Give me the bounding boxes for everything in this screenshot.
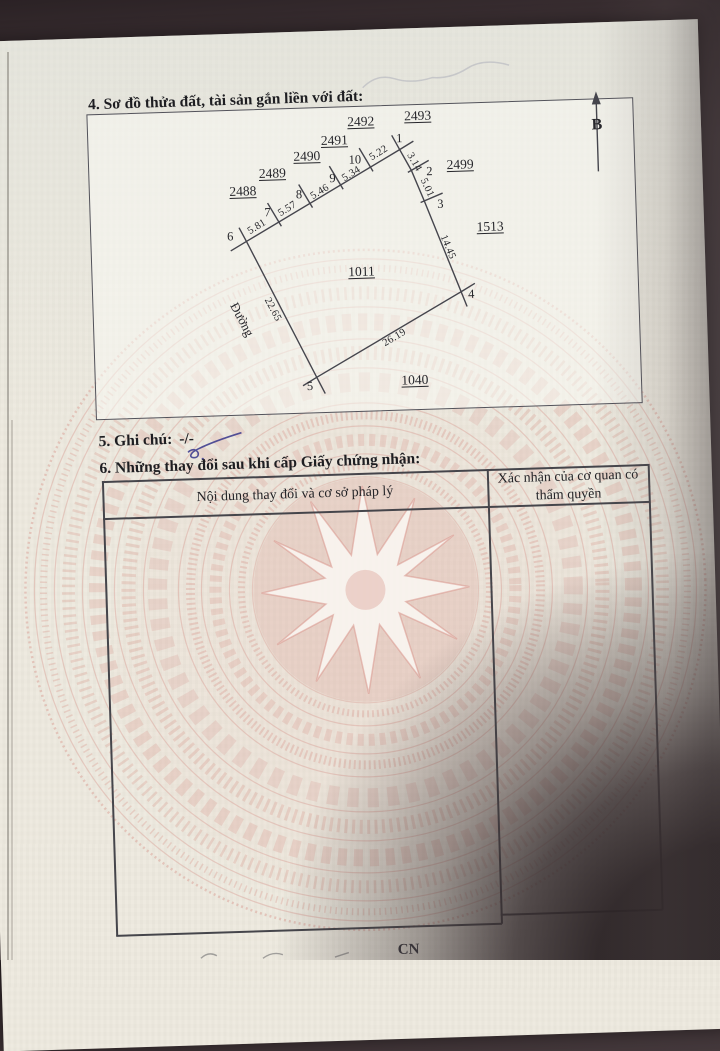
certificate-paper-sheet: 4. Sơ đồ thửa đất, tài sản gắn liền với …	[0, 19, 720, 1051]
parcel-label: 2489	[259, 165, 286, 182]
vertex-number: 9	[329, 171, 336, 186]
parcel-label: 2493	[404, 108, 431, 125]
page-content: 4. Sơ đồ thửa đất, tài sản gắn liền với …	[0, 19, 720, 1051]
ghost-handwriting	[362, 62, 510, 88]
vertex-number: 1	[396, 131, 403, 146]
parcel-label: 1513	[476, 218, 503, 235]
parcel-label: 2492	[347, 113, 374, 130]
north-label: B	[591, 116, 602, 134]
north-arrow	[596, 98, 598, 171]
vertex-number: 7	[264, 205, 271, 220]
parcel-label: 2499	[446, 156, 473, 173]
parcel-label: 2488	[229, 183, 256, 200]
table-col2-header: Xác nhận của cơ quan có thẩm quyền	[497, 466, 640, 506]
section5-title: 5. Ghi chú:	[98, 431, 172, 450]
parcel-label: 1011	[348, 263, 375, 280]
parcel-label: 2490	[293, 148, 320, 165]
bottom-partial-text: CN	[398, 941, 420, 959]
bottom-faint-marks	[201, 950, 349, 962]
vertex-number: 4	[468, 287, 475, 302]
north-arrow-head	[591, 91, 600, 104]
section5-value: -/-	[179, 430, 194, 447]
photo-of-land-certificate-page: { "document": { "type_note": "Vietnamese…	[0, 0, 720, 960]
page-stack-seam	[7, 52, 9, 960]
page-stack-seam	[11, 420, 13, 960]
parcel-label: 1040	[401, 372, 428, 389]
section5-line: 5. Ghi chú:-/-	[98, 430, 194, 451]
parcel-label: 2491	[321, 132, 348, 149]
vertex-number: 3	[437, 197, 444, 212]
vertex-number: 6	[227, 229, 234, 244]
vertex-number: 8	[296, 187, 303, 202]
vertex-number: 5	[307, 379, 314, 394]
